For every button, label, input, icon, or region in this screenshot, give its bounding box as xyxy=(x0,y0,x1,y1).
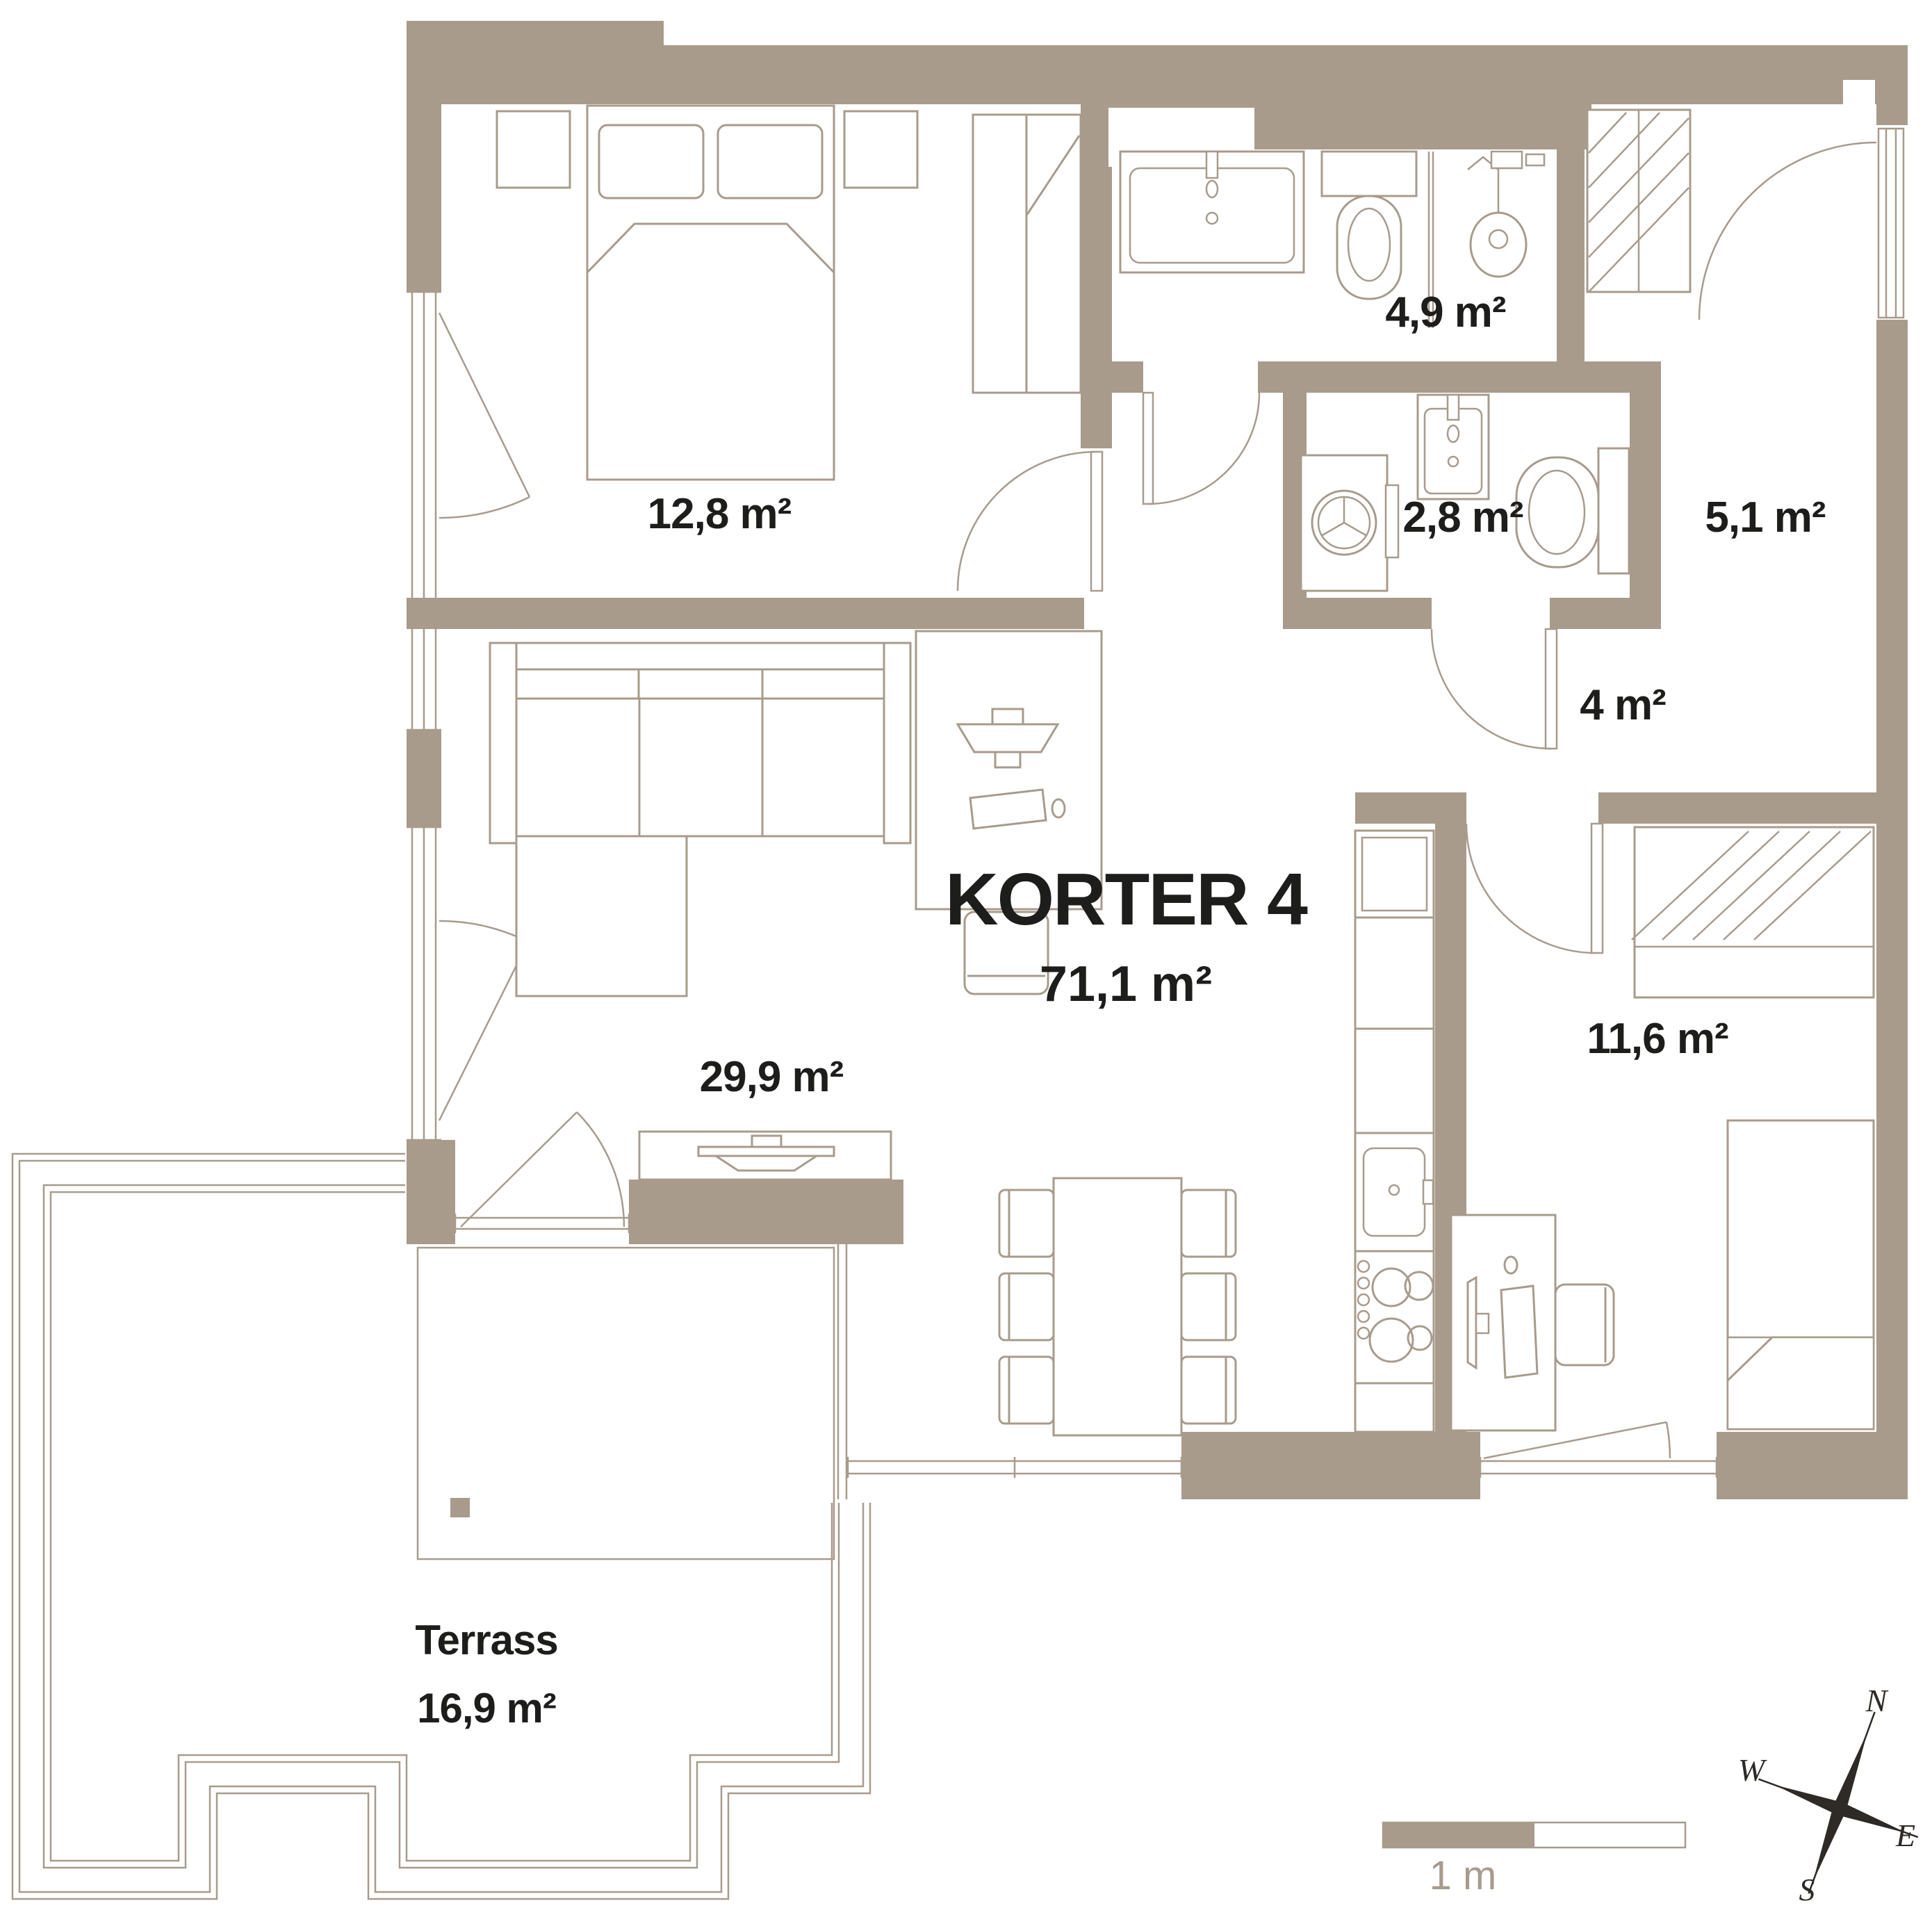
wardrobe-icon xyxy=(1587,110,1690,292)
washing-machine-icon xyxy=(1301,455,1398,591)
room-label-hall: 4 m² xyxy=(1580,681,1666,729)
office-chair-icon xyxy=(1555,1285,1614,1365)
apartment-area: 71,1 m² xyxy=(1040,956,1212,1012)
kitchen-icons xyxy=(1355,831,1434,1432)
toilet-icon xyxy=(1516,448,1629,573)
shower-icon xyxy=(1468,152,1544,277)
door-swing-wc xyxy=(1432,629,1557,749)
balcony-threshold xyxy=(455,1214,629,1233)
room-label-entry: 5,1 m² xyxy=(1705,494,1826,541)
window-icon xyxy=(848,1457,1181,1478)
floor-plan-svg: KORTER 4 71,1 m² 12,8 m² 4,9 m² 2,8 m² 5… xyxy=(0,0,1932,1908)
room-label-bathroom: 4,9 m² xyxy=(1385,288,1506,336)
balcony-door xyxy=(461,1112,624,1227)
bathroom-sink-icon xyxy=(1418,395,1489,499)
room-label-bedroom2: 11,6 m² xyxy=(1587,1015,1728,1063)
terrace-outline xyxy=(13,1154,870,1899)
double-bed-icon xyxy=(587,106,834,480)
bathroom-sink-icon xyxy=(1120,152,1304,272)
kitchen-cabinet-icon xyxy=(1355,1029,1434,1133)
terrace-post xyxy=(450,1498,470,1517)
room-label-living: 29,9 m² xyxy=(700,1053,844,1101)
room-label-bedroom1: 12,8 m² xyxy=(648,490,792,538)
tv-bench-icon xyxy=(639,1132,891,1180)
window-icon xyxy=(407,827,528,1140)
front-door xyxy=(1699,129,1904,320)
door-swing-bathroom xyxy=(1143,393,1259,504)
compass-north-label: N xyxy=(1865,1683,1889,1718)
fridge-icon xyxy=(1355,831,1434,918)
scale-bar: 1 m xyxy=(1383,1823,1685,1898)
stove-icon xyxy=(1355,1251,1434,1383)
kitchen-sink-icon xyxy=(1355,1133,1434,1251)
floor-plan: KORTER 4 71,1 m² 12,8 m² 4,9 m² 2,8 m² 5… xyxy=(0,0,1932,1908)
terrace-glazing xyxy=(838,1244,846,1499)
terrace-area: 16,9 m² xyxy=(417,1685,556,1731)
compass-west-label: W xyxy=(1738,1752,1767,1788)
toilet-icon xyxy=(1322,152,1416,299)
scale-bar-label: 1 m xyxy=(1430,1853,1497,1898)
entry-niche xyxy=(1843,80,1875,139)
door-swing-bedroom1 xyxy=(958,452,1102,591)
nightstand-icon xyxy=(497,111,570,188)
nightstand-icon xyxy=(844,111,917,188)
compass-east-label: E xyxy=(1895,1818,1915,1853)
wardrobe-icon xyxy=(1632,827,1874,997)
room-label-wc: 2,8 m² xyxy=(1402,494,1523,541)
apartment-title: KORTER 4 xyxy=(945,858,1308,940)
terrace-platform xyxy=(418,1248,834,1559)
wardrobe-icon xyxy=(973,115,1081,393)
kitchen-cabinet-icon xyxy=(1355,1383,1434,1432)
kitchen-cabinet-icon xyxy=(1355,918,1434,1029)
compass-south-label: S xyxy=(1799,1872,1815,1907)
terrace-name: Terrass xyxy=(415,1617,557,1663)
sofa-icon xyxy=(490,643,910,996)
compass-rose-icon: N W E S xyxy=(1728,1683,1932,1908)
single-bed-icon xyxy=(1728,1120,1874,1429)
dining-table-icon xyxy=(1054,1178,1181,1435)
door-swing-bedroom2 xyxy=(1466,824,1603,953)
desk-icon xyxy=(1451,1215,1555,1430)
